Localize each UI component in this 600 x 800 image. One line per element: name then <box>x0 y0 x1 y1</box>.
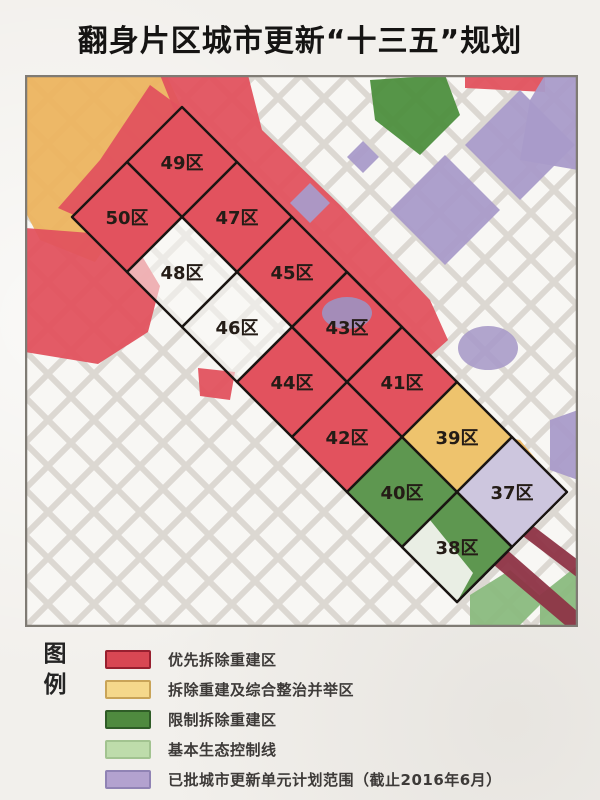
district-label-42: 42区 <box>325 428 368 449</box>
legend-item-1: 拆除重建及综合整治并举区 <box>105 674 502 704</box>
area-purple-blob <box>458 326 518 370</box>
legend-label-1: 拆除重建及综合整治并举区 <box>168 679 354 700</box>
legend-heading-char-2: 例 <box>40 670 70 701</box>
legend-swatch-0 <box>105 650 151 669</box>
district-label-44: 44区 <box>270 373 313 394</box>
district-label-43: 43区 <box>325 318 368 339</box>
district-label-47: 47区 <box>215 208 258 229</box>
legend-item-4: 已批城市更新单元计划范围（截止2016年6月） <box>105 764 502 794</box>
district-label-37: 37区 <box>490 483 533 504</box>
legend-item-0: 优先拆除重建区 <box>105 644 502 674</box>
legend-item-3: 基本生态控制线 <box>105 734 502 764</box>
area-purple-rightedge <box>550 410 578 480</box>
planning-map: 49区47区45区43区41区39区37区50区48区46区44区42区40区3… <box>25 75 578 627</box>
legend-label-2: 限制拆除重建区 <box>168 709 277 730</box>
legend-label-4: 已批城市更新单元计划范围（截止2016年6月） <box>168 769 502 790</box>
district-label-38: 38区 <box>435 538 478 559</box>
district-label-39: 39区 <box>435 428 478 449</box>
legend-item-2: 限制拆除重建区 <box>105 704 502 734</box>
legend-swatch-4 <box>105 770 151 789</box>
district-label-50: 50区 <box>105 208 148 229</box>
district-label-45: 45区 <box>270 263 313 284</box>
legend-heading: 图 例 <box>40 639 70 701</box>
legend-heading-char-1: 图 <box>40 639 70 670</box>
legend-swatch-2 <box>105 710 151 729</box>
district-label-46: 46区 <box>215 318 258 339</box>
legend: 优先拆除重建区拆除重建及综合整治并举区限制拆除重建区基本生态控制线已批城市更新单… <box>105 644 502 794</box>
planning-map-canvas: 49区47区45区43区41区39区37区50区48区46区44区42区40区3… <box>25 75 578 627</box>
legend-label-3: 基本生态控制线 <box>168 739 277 760</box>
legend-swatch-3 <box>105 740 151 759</box>
district-label-41: 41区 <box>380 373 423 394</box>
district-label-48: 48区 <box>160 263 203 284</box>
district-label-49: 49区 <box>160 153 203 174</box>
district-label-40: 40区 <box>380 483 423 504</box>
legend-swatch-1 <box>105 680 151 699</box>
page-title: 翻身片区城市更新“十三五”规划 <box>0 16 600 60</box>
legend-label-0: 优先拆除重建区 <box>168 649 277 670</box>
